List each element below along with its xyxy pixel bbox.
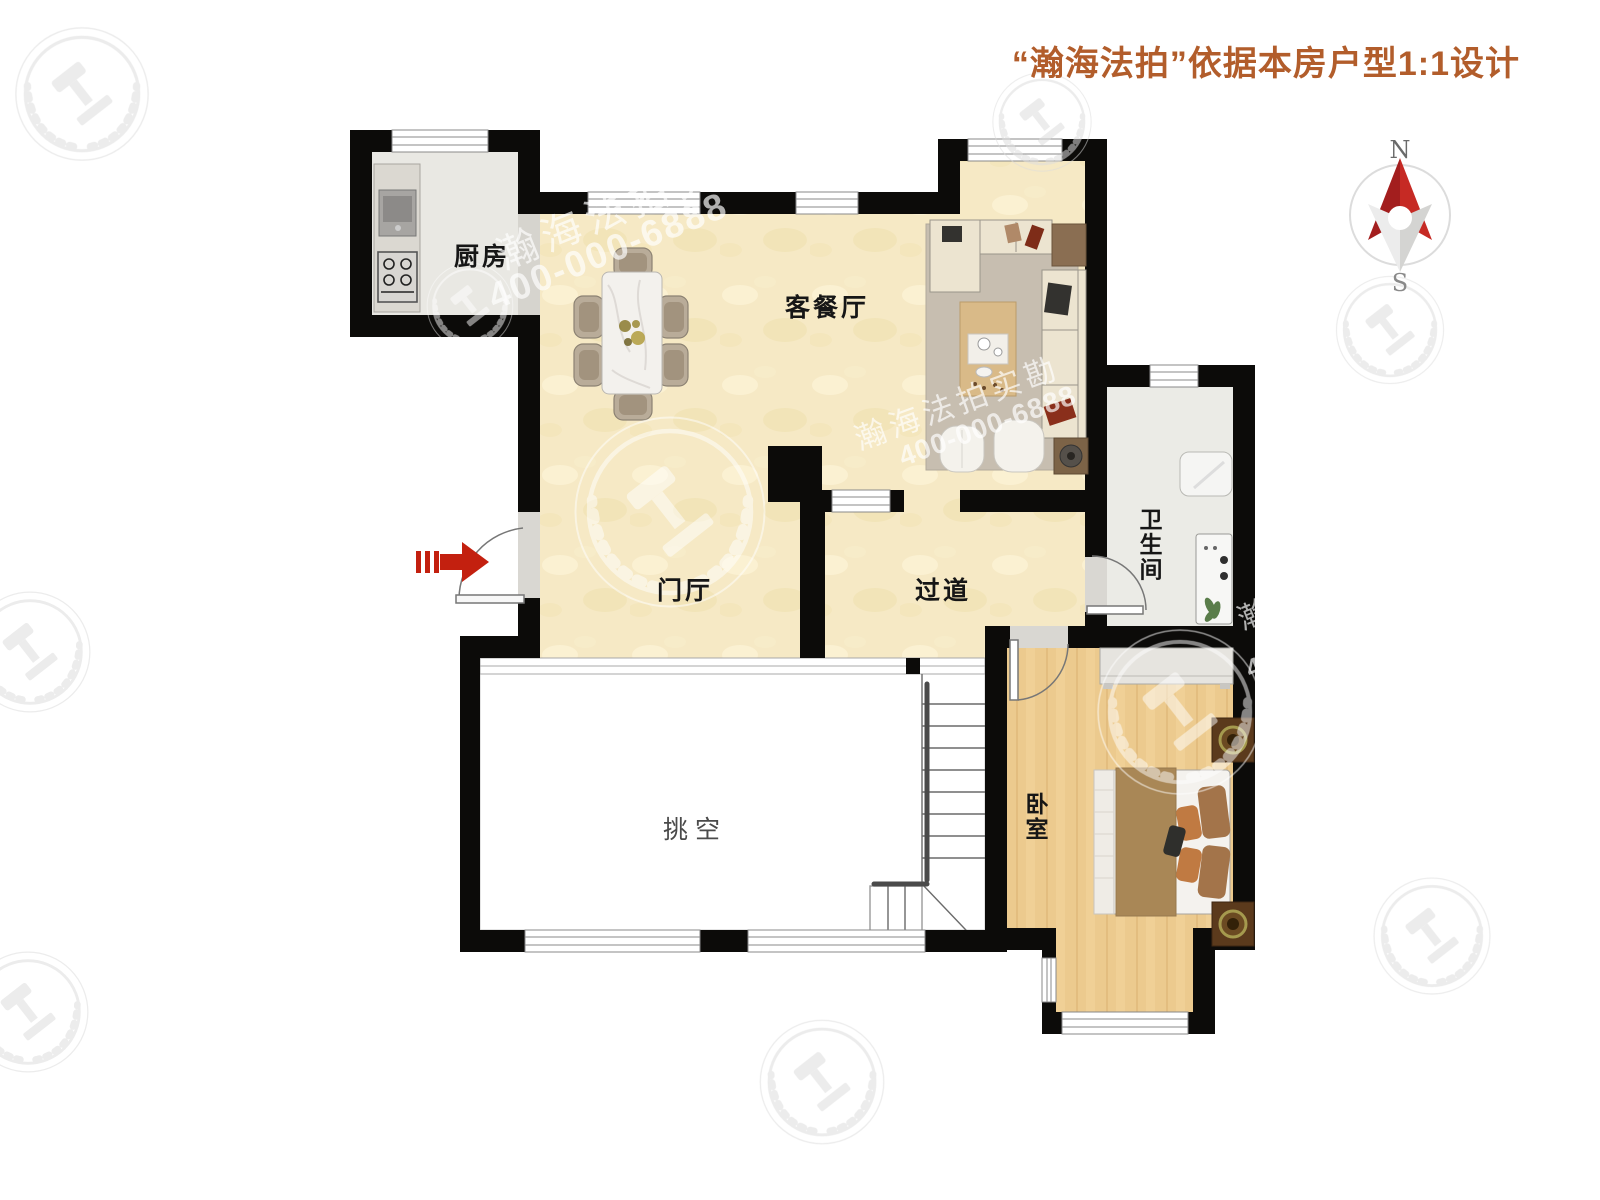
void-window-2 [748,930,925,952]
side-table-bottom [1054,438,1088,474]
sofa-pillow-dark [942,226,962,242]
nightstand-bottom [1212,902,1254,946]
compass-icon [1350,158,1450,272]
room-label-entry-hall: 门厅 [657,571,713,607]
compass-south-label: S [1392,269,1408,297]
kitchen-counter [374,164,420,312]
sofa-right [1042,270,1086,438]
column [768,446,822,502]
compass-north-label: N [1390,136,1411,164]
void-window-1 [525,930,700,952]
floorplan-page: “瀚海法拍”依据本房户型1:1设计 N S 厨房 客餐厅 门厅 过道 卫生间 卧… [0,0,1600,1200]
room-label-bedroom: 卧室 [1018,792,1052,842]
room-label-living-dining: 客餐厅 [785,288,869,324]
entrance-arrow-icon [416,542,489,582]
kitchen-sink [379,190,416,236]
logo-watermark-icon [16,28,148,160]
room-label-kitchen: 厨房 [454,237,510,273]
bathroom-vanity [1180,452,1232,496]
entrance-opening [518,512,540,598]
interior-pass-window [832,490,890,512]
room-label-void: 挑空 [663,810,727,846]
bathroom-opening [1085,557,1107,612]
stove [378,252,417,302]
coffee-table [960,302,1016,396]
washing-machine [1196,534,1232,624]
room-label-bathroom: 卫生间 [1132,508,1166,583]
living-window-1 [588,192,700,214]
footboard [1094,770,1114,914]
dining-table [602,272,662,394]
kitchen-window [392,130,488,152]
bay-side-window [1042,958,1056,1002]
bed [1094,768,1231,916]
bay-window-floor [1056,928,1193,1012]
void-edge [480,658,985,674]
living-room-set [926,220,1088,474]
side-table-top [1052,224,1086,266]
page-title: “瀚海法拍”依据本房户型1:1设计 [1012,36,1520,85]
room-label-corridor: 过道 [915,571,971,607]
living-window-2 [796,192,858,214]
bathroom-window [1150,365,1198,387]
kitchen-opening [518,214,540,315]
bay-bottom-window [1062,1012,1188,1034]
floor-plan-svg [0,0,1600,1200]
